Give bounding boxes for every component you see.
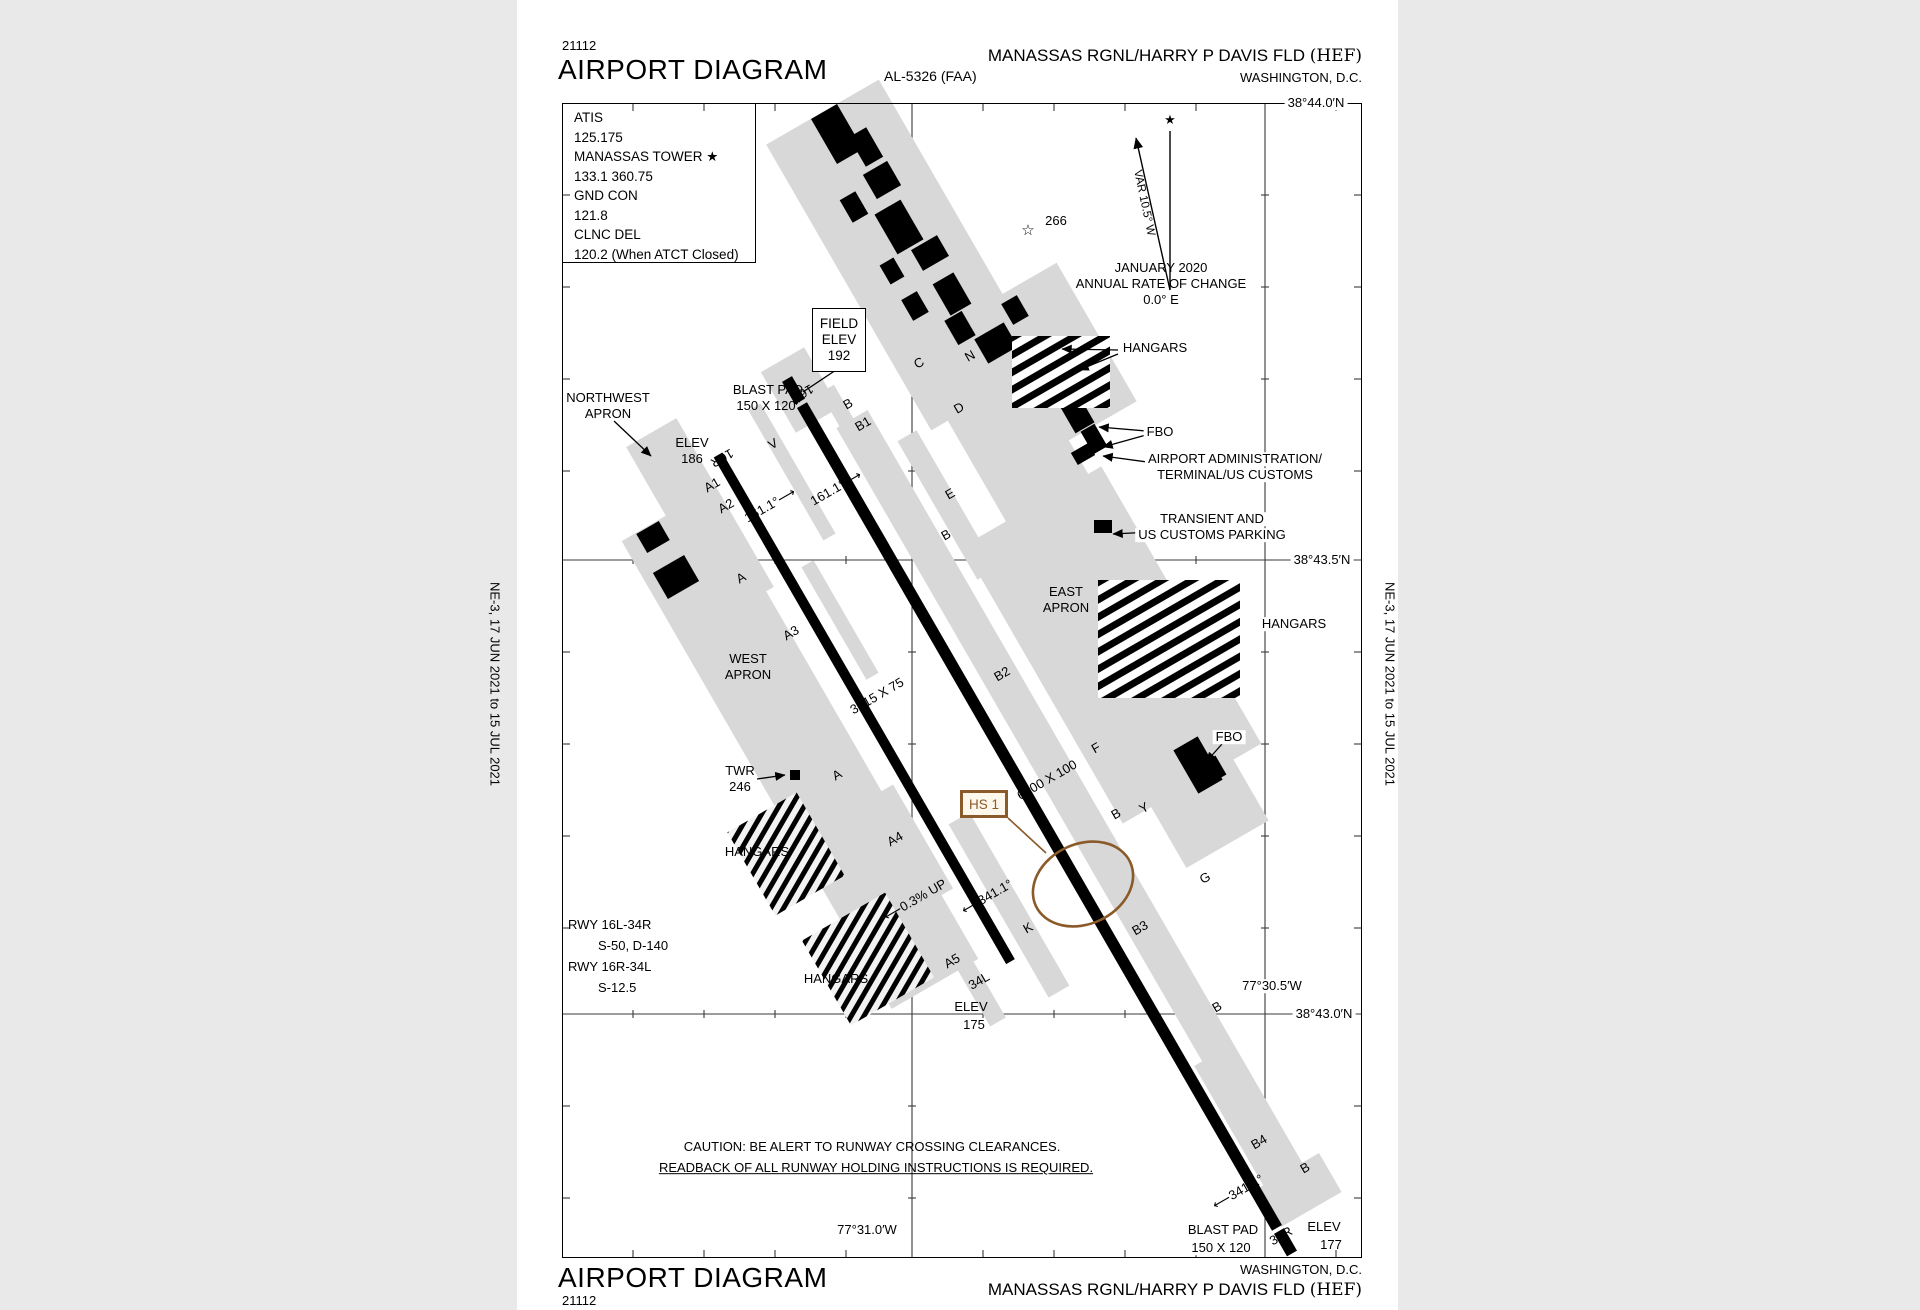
- blastpad-south-label-2: 150 X 120: [1188, 1241, 1253, 1255]
- taxiway-b-label-5: B: [1298, 1160, 1312, 1176]
- taxiway-b3-label: B3: [1130, 918, 1151, 938]
- taxiway-b1-label: B1: [853, 414, 874, 434]
- taxiway-a-label-1: A: [734, 570, 748, 586]
- blastpad-north-label-2: 150 X 120: [736, 399, 795, 413]
- field-elev-line-2: 192: [828, 348, 851, 364]
- taxiway-b-label-4: B: [1210, 999, 1224, 1015]
- lat-label-44-0: 38°44.0′N: [1285, 96, 1348, 110]
- taxiway-a5-label: A5: [942, 951, 963, 971]
- taxiway-b-label-3: B: [1109, 806, 1123, 822]
- rwy-16l-dimensions: 6200 X 100: [1015, 757, 1079, 802]
- elev-177-label-2: 177: [1320, 1238, 1342, 1252]
- rwy-data-3: RWY 16R-34L: [568, 960, 651, 974]
- elev-177-label-1: ELEV: [1307, 1220, 1340, 1234]
- taxiway-b4-label: B4: [1249, 1132, 1270, 1152]
- taxiway-g-label: G: [1197, 870, 1213, 887]
- airport-diagram-page: 21112 AIRPORT DIAGRAM AL-5326 (FAA) MANA…: [0, 0, 1920, 1310]
- taxiway-a2-label: A2: [716, 496, 737, 516]
- rwy-16r-number: 16R: [708, 446, 735, 470]
- taxiway-a-label-2: A: [830, 767, 844, 783]
- lat-label-43-0: 38°43.0′N: [1293, 1007, 1356, 1021]
- rwy-data-1: RWY 16L-34R: [568, 918, 651, 932]
- taxiway-v-label: V: [766, 436, 780, 452]
- rwy-heading-161-west: 161.1°⟶: [742, 485, 798, 525]
- taxiway-f-label: F: [1089, 740, 1103, 756]
- taxiway-b-label-1: B: [841, 396, 855, 412]
- rwy-heading-341-east: ⟵341.1°: [1210, 1172, 1266, 1212]
- hangars-north-label: HANGARS: [1120, 341, 1190, 355]
- taxiway-a4-label: A4: [885, 829, 906, 849]
- taxiway-a3-label: A3: [781, 623, 802, 643]
- beacon-elev: 266: [1045, 214, 1067, 228]
- rwy-34r-number: 34R: [1267, 1224, 1294, 1248]
- taxiway-n-label-2: N: [963, 348, 978, 365]
- taxiway-k-label: K: [1021, 920, 1035, 936]
- caution-line-2: READBACK OF ALL RUNWAY HOLDING INSTRUCTI…: [659, 1161, 1093, 1175]
- elev-186-label-2: 186: [681, 452, 703, 466]
- field-elevation-box: FIELDELEV192: [812, 308, 866, 372]
- rwy-gradient: ⟵0.3% UP: [881, 877, 948, 924]
- magvar-rate-1: ANNUAL RATE OF CHANGE: [1076, 277, 1246, 291]
- magvar-rate-2: 0.0° E: [1143, 293, 1179, 307]
- elev-186-label-1: ELEV: [675, 436, 708, 450]
- west-apron-label-1: WEST: [729, 652, 767, 666]
- lat-label-43-5: 38°43.5′N: [1291, 553, 1354, 567]
- hangars-east-label: HANGARS: [1259, 617, 1329, 631]
- hotspot-hs1-label: HS 1: [960, 790, 1008, 818]
- blastpad-south-label-1: BLAST PAD: [1185, 1223, 1261, 1237]
- taxiway-b2-label: B2: [992, 664, 1013, 684]
- northwest-apron-label-2: APRON: [585, 407, 631, 421]
- elev-175-label-1: ELEV: [954, 1000, 987, 1014]
- admin-label-2: TERMINAL/US CUSTOMS: [1154, 468, 1316, 482]
- field-elev-line-1: ELEV: [822, 332, 857, 348]
- rwy-heading-161-east: 161.1°⟶: [808, 468, 864, 508]
- transient-label-2: US CUSTOMS PARKING: [1135, 528, 1289, 542]
- field-elev-line-0: FIELD: [820, 316, 858, 332]
- rwy-34l-number: 34L: [966, 970, 992, 993]
- true-north-star-icon: ★: [1164, 113, 1176, 127]
- taxiway-e-label: E: [943, 486, 957, 502]
- taxiway-d-label: D: [952, 400, 967, 417]
- lon-label-31-0: 77°31.0′W: [834, 1223, 900, 1237]
- lon-label-30-5: 77°30.5′W: [1239, 979, 1305, 993]
- rwy-16r-dimensions: 3715 X 75: [848, 675, 906, 716]
- caution-line-1: CAUTION: BE ALERT TO RUNWAY CROSSING CLE…: [684, 1140, 1061, 1154]
- hangars-southwest-label: HANGARS: [804, 972, 868, 986]
- taxiway-a1-label: A1: [702, 475, 723, 495]
- magvar-date: JANUARY 2020: [1115, 261, 1208, 275]
- taxiway-b-label-2: B: [939, 527, 953, 543]
- rwy-data-2: S-50, D-140: [598, 939, 668, 953]
- east-apron-label-1: EAST: [1049, 585, 1083, 599]
- map-labels: 38°44.0′N38°43.5′N38°43.0′N77°30.5′W77°3…: [0, 0, 1920, 1310]
- tower-label-1: TWR: [725, 764, 755, 778]
- west-apron-label-2: APRON: [725, 668, 771, 682]
- rwy-heading-341-west: ⟵341.1°: [959, 877, 1015, 917]
- transient-label-1: TRANSIENT AND: [1157, 512, 1267, 526]
- fbo-south-label: FBO: [1213, 730, 1246, 744]
- admin-label-1: AIRPORT ADMINISTRATION/: [1145, 452, 1325, 466]
- tower-label-2: 246: [729, 780, 751, 794]
- east-apron-label-2: APRON: [1043, 601, 1089, 615]
- taxiway-y-label: Y: [1137, 800, 1151, 816]
- northwest-apron-label-1: NORTHWEST: [566, 391, 650, 405]
- fbo-north-label: FBO: [1144, 425, 1177, 439]
- taxiway-c-label: C: [912, 355, 927, 372]
- taxiway-n-label-1: N: [889, 222, 904, 239]
- hangars-west-label: HANGARS: [725, 845, 789, 859]
- beacon-star-icon: ☆: [1021, 223, 1034, 239]
- var-label: VAR 10.5° W: [1131, 169, 1157, 237]
- rwy-data-4: S-12.5: [598, 981, 636, 995]
- elev-175-label-2: 175: [963, 1018, 985, 1032]
